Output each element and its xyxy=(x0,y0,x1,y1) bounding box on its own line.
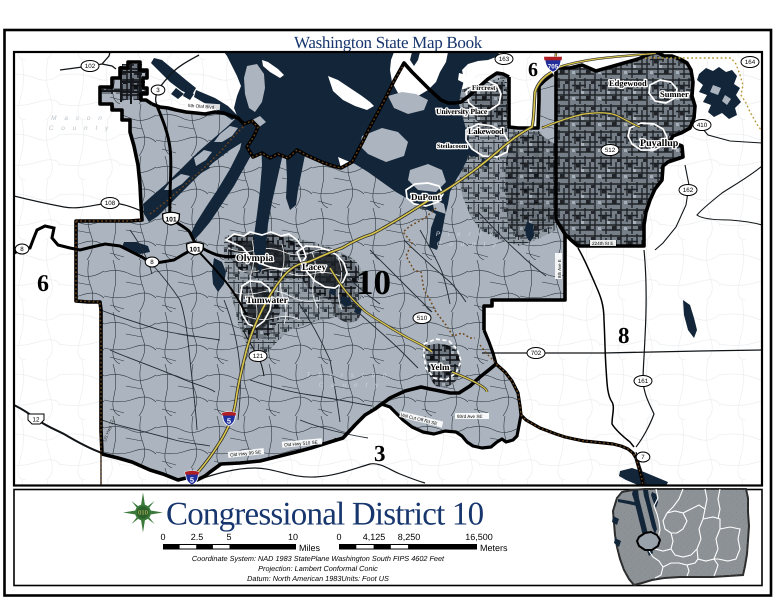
svg-text:Projection: Lambert Conformal: Projection: Lambert Conformal Conic xyxy=(258,564,378,573)
svg-text:512: 512 xyxy=(605,147,616,154)
svg-text:102: 102 xyxy=(85,63,96,70)
svg-text:7: 7 xyxy=(641,454,645,461)
svg-text:3: 3 xyxy=(374,441,386,466)
svg-text:P i e r c e: P i e r c e xyxy=(436,231,496,238)
svg-text:Puyallup: Puyallup xyxy=(640,138,679,149)
svg-text:510: 510 xyxy=(417,315,428,322)
svg-text:5: 5 xyxy=(226,532,231,542)
svg-text:Yelm: Yelm xyxy=(430,362,450,372)
svg-text:6: 6 xyxy=(37,271,49,297)
svg-text:C o u n t y: C o u n t y xyxy=(437,241,500,248)
svg-text:010: 010 xyxy=(138,510,148,517)
svg-text:93rd Ave SE: 93rd Ave SE xyxy=(457,414,482,419)
svg-text:Edgewood: Edgewood xyxy=(609,78,647,88)
svg-text:8: 8 xyxy=(150,259,154,266)
svg-text:M a s o n: M a s o n xyxy=(51,115,105,122)
svg-text:410: 410 xyxy=(697,122,708,129)
svg-text:Datum: North American 1983Unit: Datum: North American 1983Units: Foot US xyxy=(247,574,389,583)
svg-text:Steilacoom: Steilacoom xyxy=(437,143,468,150)
svg-text:705: 705 xyxy=(548,64,559,71)
svg-text:108: 108 xyxy=(105,200,116,207)
svg-text:12: 12 xyxy=(33,417,40,424)
svg-text:163: 163 xyxy=(499,56,510,63)
svg-text:164: 164 xyxy=(745,59,756,66)
svg-text:702: 702 xyxy=(531,350,542,357)
svg-text:101: 101 xyxy=(189,246,201,253)
svg-text:121: 121 xyxy=(253,353,264,360)
svg-text:101: 101 xyxy=(165,216,177,223)
svg-text:0: 0 xyxy=(160,532,165,542)
svg-text:C o u n t y: C o u n t y xyxy=(49,125,112,132)
svg-text:Miles: Miles xyxy=(299,543,321,553)
svg-text:Meters: Meters xyxy=(480,543,508,553)
svg-text:5: 5 xyxy=(190,476,194,485)
svg-text:162: 162 xyxy=(683,187,694,194)
svg-text:8,250: 8,250 xyxy=(398,532,421,542)
svg-text:6: 6 xyxy=(528,59,538,81)
svg-text:4,125: 4,125 xyxy=(363,532,386,542)
svg-text:Washington State Map Book: Washington State Map Book xyxy=(294,33,483,52)
svg-text:0: 0 xyxy=(336,532,341,542)
svg-text:224th St E: 224th St E xyxy=(592,241,613,246)
svg-text:8: 8 xyxy=(618,323,630,348)
svg-text:University Place: University Place xyxy=(436,107,488,116)
svg-text:DuPont: DuPont xyxy=(411,192,441,202)
svg-text:C o u n t y: C o u n t y xyxy=(319,382,382,389)
svg-text:8th Ave E: 8th Ave E xyxy=(557,259,562,278)
svg-text:161: 161 xyxy=(638,378,649,385)
svg-text:Coordinate System: NAD 1983 St: Coordinate System: NAD 1983 StatePlane W… xyxy=(192,554,445,563)
svg-text:10: 10 xyxy=(356,263,391,302)
svg-text:T h u r s t o n: T h u r s t o n xyxy=(306,372,389,379)
svg-text:Congressional District 10: Congressional District 10 xyxy=(166,497,484,533)
svg-text:Tumwater: Tumwater xyxy=(246,296,289,306)
svg-text:2.5: 2.5 xyxy=(191,532,204,542)
svg-text:3: 3 xyxy=(156,87,160,94)
svg-text:5: 5 xyxy=(227,417,231,426)
svg-text:Lacey: Lacey xyxy=(302,263,327,273)
svg-text:Fircrest: Fircrest xyxy=(472,84,496,92)
svg-text:8: 8 xyxy=(20,246,24,253)
svg-text:Lakewood: Lakewood xyxy=(468,126,504,136)
svg-text:10: 10 xyxy=(288,532,298,542)
svg-text:Olympia: Olympia xyxy=(236,253,273,264)
svg-text:16,500: 16,500 xyxy=(465,532,493,542)
svg-text:Sumner: Sumner xyxy=(660,89,689,99)
